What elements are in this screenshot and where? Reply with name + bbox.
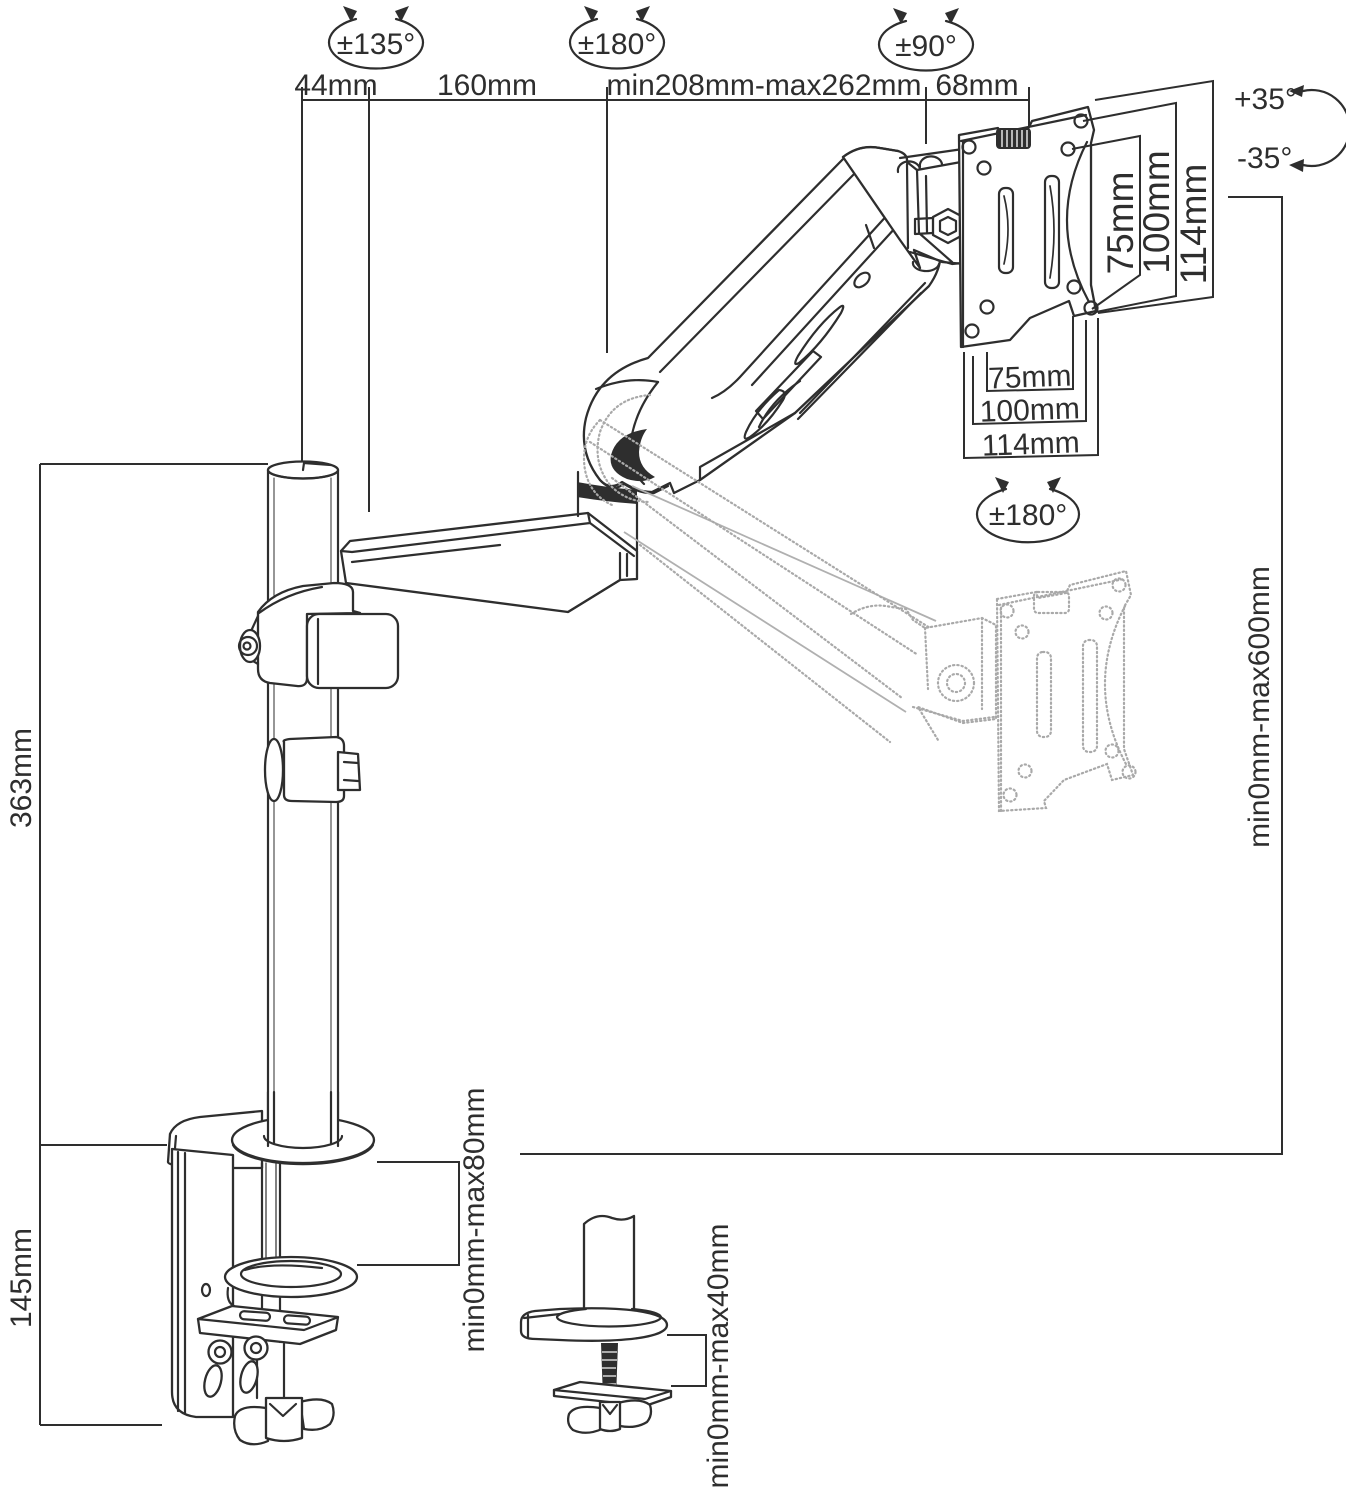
- svg-text:min0mm-max80mm: min0mm-max80mm: [458, 1087, 491, 1352]
- svg-text:+35°: +35°: [1234, 83, 1297, 116]
- svg-text:±90°: ±90°: [895, 30, 957, 63]
- svg-text:min0mm-max40mm: min0mm-max40mm: [702, 1223, 735, 1488]
- svg-text:114mm: 114mm: [981, 426, 1080, 462]
- svg-text:-35°: -35°: [1237, 142, 1292, 175]
- svg-text:±180°: ±180°: [578, 28, 657, 61]
- svg-text:100mm: 100mm: [979, 392, 1080, 428]
- svg-text:114mm: 114mm: [1173, 164, 1214, 285]
- svg-text:160mm: 160mm: [437, 69, 537, 102]
- svg-text:75mm: 75mm: [988, 360, 1072, 396]
- svg-text:363mm: 363mm: [5, 728, 38, 828]
- svg-text:75mm: 75mm: [1100, 172, 1141, 275]
- svg-text:±135°: ±135°: [337, 28, 416, 61]
- svg-text:145mm: 145mm: [5, 1228, 38, 1328]
- svg-text:100mm: 100mm: [1136, 150, 1177, 273]
- svg-text:68mm: 68mm: [935, 69, 1018, 102]
- svg-text:min208mm-max262mm: min208mm-max262mm: [606, 69, 921, 102]
- svg-text:min0mm-max600mm: min0mm-max600mm: [1243, 566, 1276, 848]
- svg-text:±180°: ±180°: [989, 499, 1068, 532]
- svg-text:44mm: 44mm: [294, 69, 377, 102]
